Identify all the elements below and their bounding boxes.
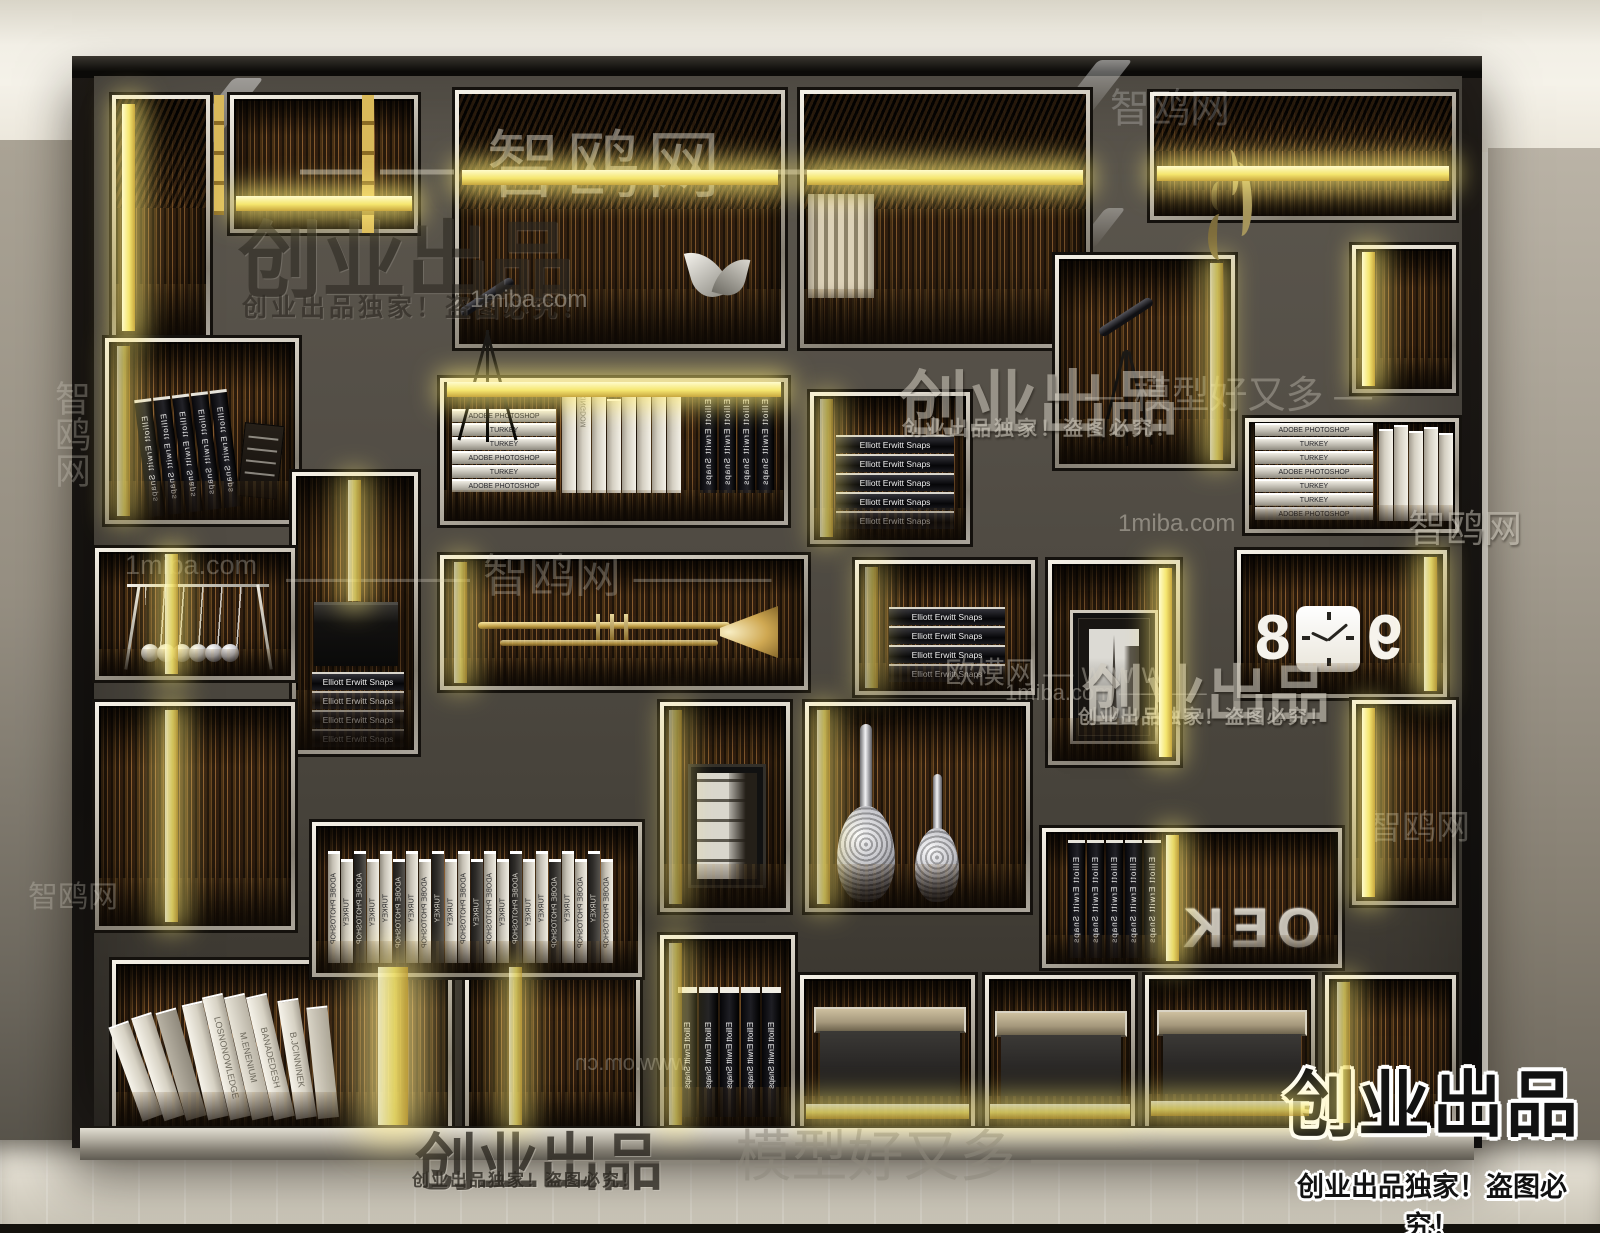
picture-frame-eiffel <box>1070 610 1158 744</box>
book-spine: ADOBE PHOTOSHOP <box>601 859 613 963</box>
led-strip <box>807 170 1083 185</box>
book-spine: Elliott Erwitt Snaps <box>889 664 1005 682</box>
storage-box <box>820 1007 960 1115</box>
book-spine <box>607 399 621 493</box>
trumpet-tube <box>478 622 730 629</box>
sculpture-curve <box>1208 214 1236 260</box>
book-spine: Elliott Erwitt Snaps <box>836 454 954 472</box>
speaker-box <box>314 602 398 666</box>
book-spine: ADOBE PHOTOSHOP <box>458 851 470 963</box>
trumpet-tube <box>500 640 718 646</box>
digit-clock: 8 9 <box>1255 606 1402 672</box>
window-photo <box>697 773 757 879</box>
clock-minute-hand <box>1328 623 1349 641</box>
led-strip <box>378 967 408 1124</box>
book-spine: TURKEY <box>497 859 509 963</box>
book-spine: Elliott Erwitt Snaps <box>312 729 404 747</box>
led-strip <box>990 1104 1129 1119</box>
cabinet-top-edge <box>72 56 1482 78</box>
shelf-cell: ADOBE PHOTOSHOPTURKEYTURKEYADOBE PHOTOSH… <box>1245 418 1459 533</box>
book-spine: Elliott Erwitt Snaps <box>1144 840 1161 958</box>
book-spine: TURKEY <box>562 851 574 963</box>
led-strip <box>669 943 682 1125</box>
book-spine: Elliott Erwitt Snaps <box>1125 840 1142 958</box>
book-spine: Elliott Erwitt Snaps <box>1068 840 1085 958</box>
telescope <box>448 282 538 454</box>
storage-box <box>1163 1010 1301 1112</box>
led-strip <box>817 710 830 904</box>
shelf-cell: Elliott Erwitt SnapsElliott Erwitt Snaps… <box>292 472 418 754</box>
led-strip <box>806 1104 970 1119</box>
book-row-adobe: ADOBE PHOTOSHOPTURKEYADOBE PHOTOSHOPTURK… <box>328 851 614 963</box>
book-row-white: KINGDOM <box>562 385 682 493</box>
shelf-cell <box>1352 700 1456 905</box>
led-strip <box>509 967 522 1124</box>
shelf-cell <box>1352 245 1456 393</box>
book-spine <box>1439 433 1453 521</box>
shelf-cell: ADOBE PHOTOSHOPTURKEYADOBE PHOTOSHOPTURK… <box>312 822 642 977</box>
book-spine: Elliott Erwitt Snaps <box>312 672 404 690</box>
cradle-leg <box>256 584 272 669</box>
led-strip <box>462 170 778 185</box>
shelf-cell: Elliott Erwitt SnapsElliott Erwitt Snaps… <box>810 392 970 544</box>
led-strip <box>348 480 361 601</box>
trumpet-bell <box>720 606 778 658</box>
book-spine: TURKEY <box>1255 493 1373 506</box>
led-strip <box>447 382 780 397</box>
led-strip <box>1210 263 1223 460</box>
shelf-cell <box>805 702 1030 912</box>
cradle-strings <box>145 587 251 650</box>
book-spine: Elliott Erwitt Snaps <box>312 710 404 728</box>
trumpet-valve <box>610 614 614 640</box>
clock-hour-hand <box>1312 632 1330 642</box>
book-spine: Elliott Erwitt Snaps <box>312 691 404 709</box>
shelf-cell: 8 9 <box>1237 550 1447 698</box>
book-spine: ADOBE PHOTOSHOP <box>452 479 556 492</box>
book-spine <box>306 1006 339 1120</box>
book-spine <box>637 393 651 493</box>
led-strip <box>122 104 135 332</box>
book-spine: TURKEY <box>471 859 483 963</box>
book-spine: TURKEY <box>367 859 379 963</box>
book-spine: ADOBE PHOTOSHOP <box>484 851 496 963</box>
book-spine: TURKEY <box>536 851 548 963</box>
vase-neck <box>933 774 942 834</box>
led-strip <box>236 196 412 211</box>
shelf-cell <box>95 702 295 930</box>
vase-body <box>915 828 959 902</box>
clock-digit: 8 <box>1255 608 1289 670</box>
vase-neck <box>860 724 872 812</box>
book-spine: ADOBE PHOTOSHOP <box>549 859 561 963</box>
telescope <box>1087 302 1177 460</box>
pleated-panel-decor <box>808 194 874 298</box>
telescope-leg <box>1127 351 1153 445</box>
shelf-cell <box>1048 560 1180 765</box>
brand-logo-title: 创业出品 <box>1282 1046 1582 1151</box>
book-spine: Elliott Erwitt Snaps <box>889 626 1005 644</box>
left-wall <box>0 140 78 1150</box>
book-spine: ADOBE PHOTOSHOP <box>354 851 366 963</box>
book-spine: Elliott Erwitt Snaps <box>836 473 954 491</box>
book-spine <box>1394 425 1408 521</box>
binder-spine: Elliott Erwitt Snaps <box>720 987 739 1117</box>
book-row-art: LOSNONOWLEDGEM.ENENIUMBANADEDESHB.JCINNI… <box>142 992 340 1118</box>
led-strip <box>1157 166 1449 181</box>
clock-digit: 9 <box>1367 608 1401 670</box>
bird-wing <box>712 253 751 299</box>
brand-logo-slogan: 创业出品独家！盗图必究！ <box>1282 1165 1582 1233</box>
cradle-balls <box>141 644 237 662</box>
room-scene: Elliott Erwitt SnapsElliott Erwitt Snaps… <box>0 0 1600 1233</box>
book-spine: Elliott Erwitt Snaps <box>1106 840 1123 958</box>
book-spine: ADOBE PHOTOSHOP <box>575 859 587 963</box>
eiffel-photo <box>1089 629 1139 725</box>
book-spine: TURKEY <box>380 851 392 963</box>
gold-accent-strip <box>362 95 374 233</box>
book-stack-elliott: Elliott Erwitt SnapsElliott Erwitt Snaps… <box>836 435 954 530</box>
book-spine: TURKEY <box>341 859 353 963</box>
box-lid <box>995 1011 1127 1037</box>
book-spine: ADOBE PHOTOSHOP <box>510 851 522 963</box>
led-strip <box>865 567 878 689</box>
led-strip <box>1151 1101 1310 1116</box>
silver-vase-short <box>915 774 959 902</box>
led-strip <box>165 710 178 921</box>
book-stack-turkey: ADOBE PHOTOSHOPTURKEYTURKEYADOBE PHOTOSH… <box>1255 423 1373 521</box>
trumpet-valve <box>624 614 628 640</box>
box-lid <box>1157 1010 1307 1036</box>
box-lid <box>814 1007 966 1033</box>
book-spine: ADOBE PHOTOSHOP <box>1255 507 1373 520</box>
led-strip <box>669 710 682 904</box>
book-spine: TURKEY <box>523 859 535 963</box>
shelf-cell <box>660 702 790 912</box>
shelf-cell: Elliott Erwitt SnapsElliott Erwitt Snaps… <box>1042 828 1342 968</box>
brand-logo: 创业出品 创业出品独家！盗图必究！ <box>1282 1046 1582 1233</box>
vase-body <box>837 806 895 902</box>
book-spine <box>1409 431 1423 521</box>
led-strip <box>454 562 467 684</box>
shelf-cell <box>800 90 1090 348</box>
led-strip <box>1337 982 1350 1123</box>
book-spine: ADOBE PHOTOSHOP <box>419 859 431 963</box>
cradle-leg <box>124 584 140 669</box>
book-spine <box>1424 427 1438 521</box>
box-body <box>1001 1035 1121 1115</box>
gold-accent-strip <box>214 95 224 215</box>
book-spine: Elliott Erwitt Snaps <box>738 389 755 493</box>
shelf-cell <box>985 975 1135 1133</box>
book-spine <box>622 393 636 493</box>
book-spine <box>652 385 666 493</box>
book-spine: TURKEY <box>1255 437 1373 450</box>
book-spine: Elliott Erwitt Snaps <box>889 645 1005 663</box>
info-board <box>237 422 285 500</box>
book-stack-elliott: Elliott Erwitt SnapsElliott Erwitt Snaps… <box>700 389 776 493</box>
book-row-white <box>1379 425 1454 521</box>
shelf-cell <box>800 975 975 1133</box>
book-spine: TURKEY <box>1255 479 1373 492</box>
binder-spine: Elliott Erwitt Snaps <box>762 987 781 1117</box>
vase-pair <box>837 712 997 902</box>
book-spine <box>667 393 681 493</box>
led-strip <box>117 346 130 517</box>
bird-sculpture <box>690 242 754 298</box>
cabinet-plinth <box>80 1126 1474 1160</box>
silver-vase-tall <box>837 724 895 902</box>
shelf-cell <box>440 555 808 690</box>
shelf-cell <box>1150 92 1456 220</box>
trumpet <box>478 606 778 660</box>
led-strip <box>165 554 178 673</box>
binder-set-elliott: Elliott Erwitt SnapsElliott Erwitt Snaps… <box>678 987 783 1117</box>
book-spine: Elliott Erwitt Snaps <box>1087 840 1104 958</box>
book-spine: TURKEY <box>1255 451 1373 464</box>
book-spine: Elliott Erwitt Snaps <box>757 389 774 493</box>
newtons-cradle <box>127 584 269 670</box>
book-spine <box>1379 429 1393 521</box>
clock-face <box>1296 606 1360 672</box>
book-spine: Elliott Erwitt Snaps <box>836 492 954 510</box>
book-spine: KINGDOM <box>577 387 591 493</box>
trumpet-valve <box>596 614 600 640</box>
book-stack-elliott: Elliott Erwitt SnapsElliott Erwitt Snaps… <box>312 672 404 748</box>
led-strip <box>1166 835 1179 962</box>
book-spine: ADOBE PHOTOSHOP <box>328 851 340 963</box>
shelf-cell <box>230 95 418 233</box>
book-spine: TURKEY <box>406 851 418 963</box>
binder-spine: Elliott Erwitt Snaps <box>741 987 760 1117</box>
box-body <box>820 1031 960 1115</box>
book-spine: ADOBE PHOTOSHOP <box>1255 465 1373 478</box>
led-strip <box>1159 568 1172 757</box>
shelf-cell <box>112 95 210 340</box>
book-spine <box>562 393 576 493</box>
book-spine <box>592 393 606 493</box>
book-spine: Elliott Erwitt Snaps <box>836 435 954 453</box>
picture-frame-window <box>688 764 766 888</box>
shelf-cell: Elliott Erwitt SnapsElliott Erwitt Snaps… <box>660 935 795 1133</box>
led-strip <box>1362 708 1375 897</box>
telescope-leg <box>1125 350 1128 446</box>
led-strip <box>1362 252 1375 386</box>
book-spine: ADOBE PHOTOSHOP <box>1255 423 1373 436</box>
book-spine: TURKEY <box>445 859 457 963</box>
book-spine: TURKEY <box>588 851 600 963</box>
book-spine: TURKEY <box>452 465 556 478</box>
book-spine: Elliott Erwitt Snaps <box>719 389 736 493</box>
book-stack-elliott: Elliott Erwitt SnapsElliott Erwitt Snaps… <box>1068 840 1163 958</box>
book-spine: Elliott Erwitt Snaps <box>700 389 717 493</box>
binder-spine: Elliott Erwitt Snaps <box>699 987 718 1117</box>
book-stack-elliott: Elliott Erwitt SnapsElliott Erwitt Snaps… <box>889 607 1005 683</box>
telescope-leg <box>1099 351 1125 445</box>
metal-letters-decor: OEK <box>1175 895 1320 960</box>
shelf-cell <box>465 960 640 1132</box>
telescope-tube <box>458 276 515 318</box>
right-wall <box>1488 148 1600 1148</box>
book-stack-elliott-leaning: Elliott Erwitt SnapsElliott Erwitt Snaps… <box>134 389 243 518</box>
storage-box <box>1001 1011 1121 1115</box>
book-spine: TURKEY <box>432 851 444 963</box>
book-spine: Elliott Erwitt Snaps <box>889 607 1005 625</box>
telescope-tube <box>1097 296 1154 338</box>
shelf-cell <box>95 548 295 680</box>
led-strip <box>820 399 833 537</box>
book-spine: Elliott Erwitt Snaps <box>836 511 954 529</box>
shelf-cell: Elliott Erwitt SnapsElliott Erwitt Snaps… <box>105 338 299 524</box>
book-spine: ADOBE PHOTOSHOP <box>393 859 405 963</box>
led-strip <box>1424 557 1437 691</box>
shelf-cell: Elliott Erwitt SnapsElliott Erwitt Snaps… <box>855 560 1035 695</box>
shelf-cell: LOSNONOWLEDGEM.ENENIUMBANADEDESHB.JCINNI… <box>112 960 452 1132</box>
